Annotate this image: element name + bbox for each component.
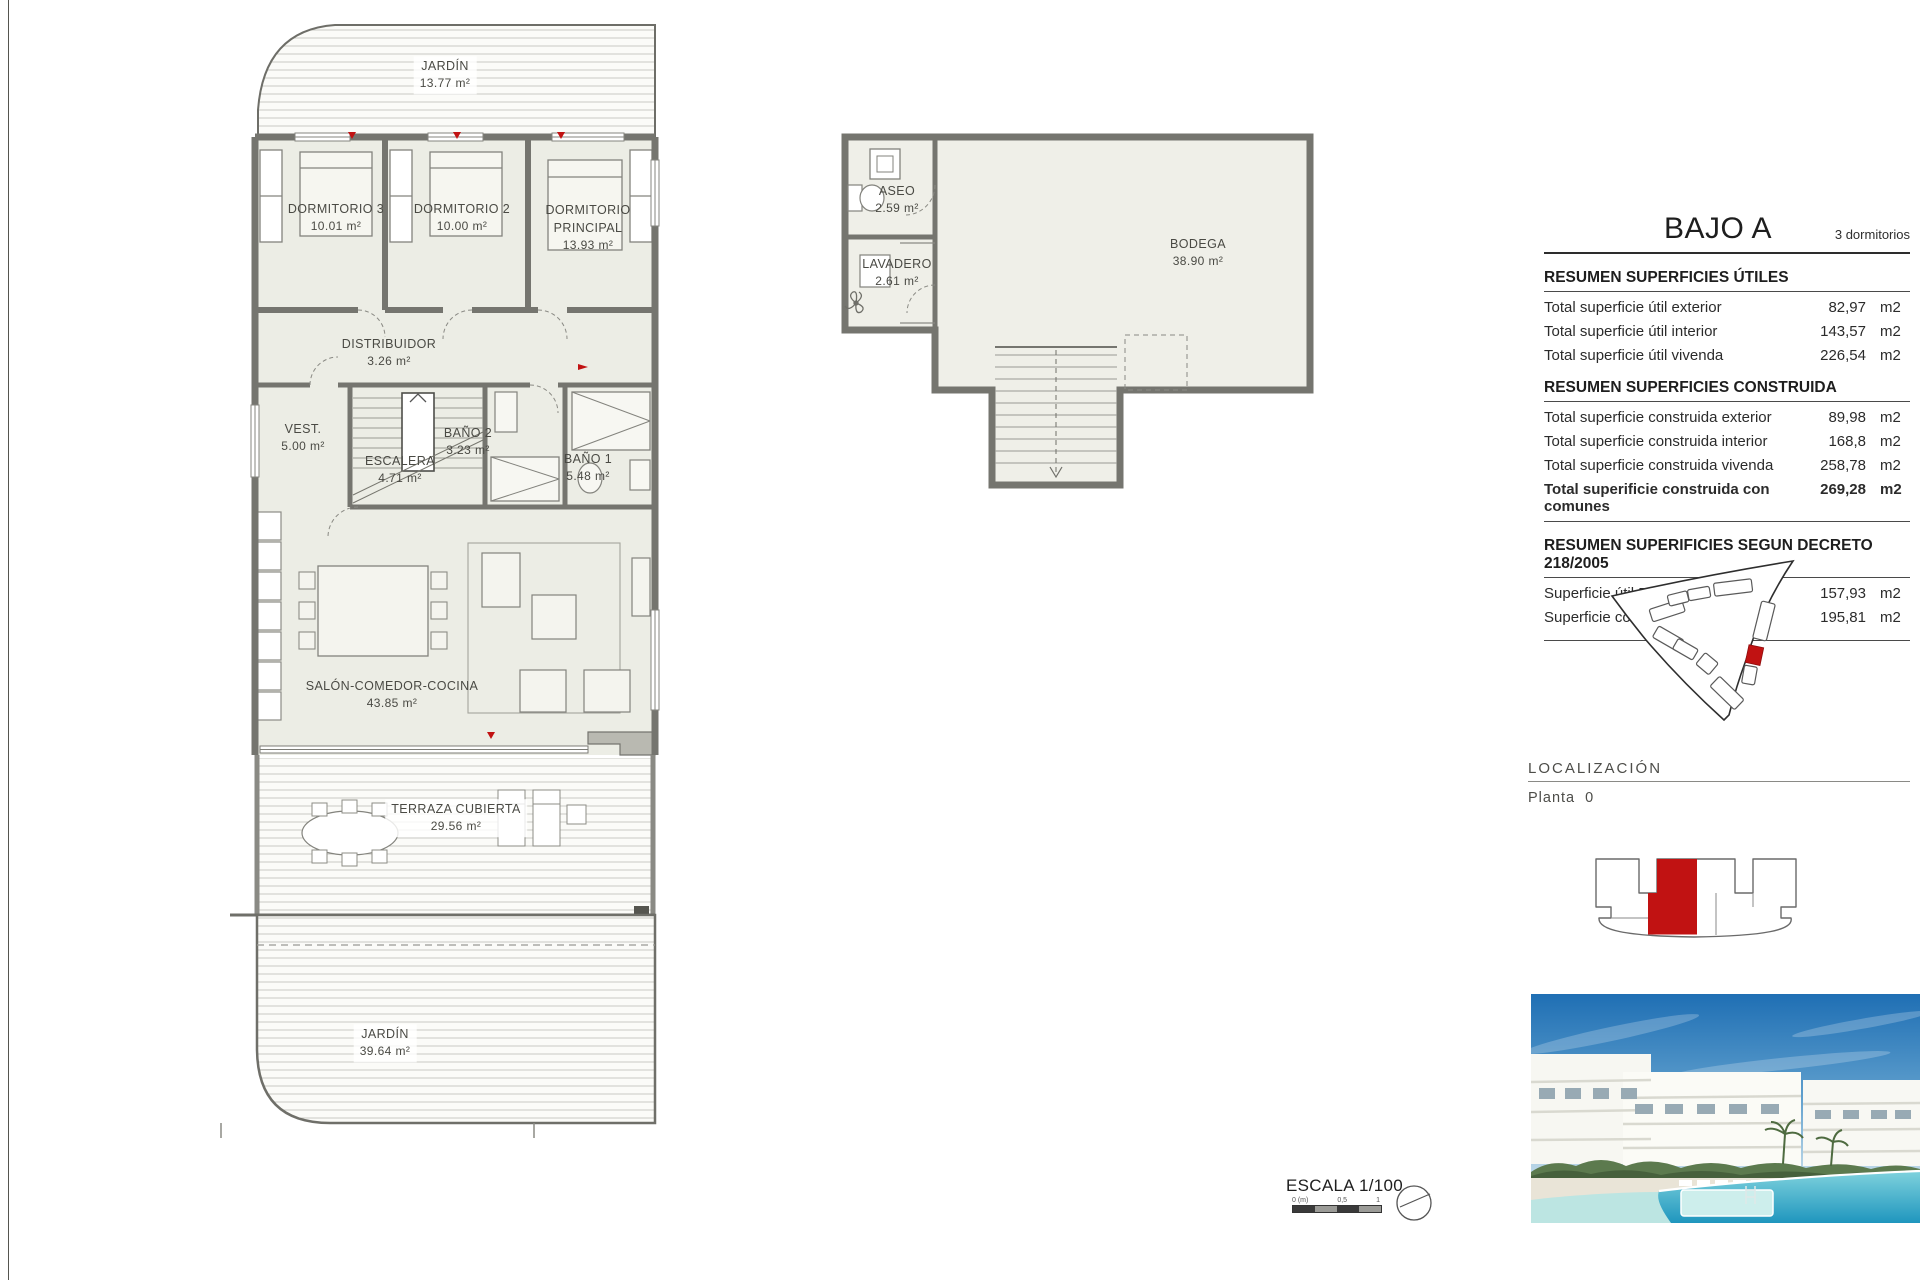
room-label-dormitorio2: DORMITORIO 210.00 m² [414,200,510,236]
room-label-jardin-top: JARDÍN13.77 m² [414,56,477,94]
north-indicator-icon [1392,1183,1436,1227]
table-row: Total superficie construida interior 168… [1544,433,1910,450]
floor-plan-drawing [200,10,680,1160]
unit-title-row: BAJO A 3 dormitorios [1544,212,1910,254]
planta-label: Planta 0 [1528,790,1910,806]
scale-tick-labels: 0 (m)0,51 [1292,1197,1380,1204]
room-label-bano1: BAÑO 15.48 m² [564,450,612,486]
main-floor-plan: JARDÍN13.77 m² DORMITORIO 310.01 m² DORM… [200,10,680,1160]
table-row-total: Total superificie construida con comunes… [1544,481,1910,522]
room-label-bano2: BAÑO 23.23 m² [444,424,492,460]
room-label-salon: SALÓN-COMEDOR-COCINA43.85 m² [306,677,479,713]
bodega-floor-plan: ASEO2.59 m² LAVADERO2.61 m² BODEGA38.90 … [840,125,1320,505]
room-label-terraza: TERRAZA CUBIERTA29.56 m² [385,799,527,837]
localizacion-heading: LOCALIZACIÓN [1528,760,1910,782]
scale-label: ESCALA 1/100 [1286,1176,1486,1196]
table-row: Total superficie útil exterior 82,97 m2 [1544,299,1910,316]
highlighted-unit-footprint [1648,859,1697,935]
room-label-lavadero: LAVADERO2.61 m² [862,255,931,291]
graphic-scale-bar [1292,1205,1382,1213]
table-row: Total superficie construida exterior 89,… [1544,409,1910,426]
room-label-distribuidor: DISTRIBUIDOR3.26 m² [342,335,436,371]
room-label-escalera: ESCALERA4.71 m² [365,452,435,488]
sheet-border-line [8,0,9,1280]
building-footprint-diagram [1590,855,1862,967]
room-label-vestidor: VEST.5.00 m² [281,420,324,456]
heading-construida: RESUMEN SUPERFICIES CONSTRUIDA [1544,379,1910,402]
room-label-dormitorio-principal: DORMITORIO PRINCIPAL 13.93 m² [545,201,630,255]
scale-block: ESCALA 1/100 0 (m)0,51 [1286,1176,1486,1213]
site-plan-diagram [1600,552,1890,752]
unit-subtitle: 3 dormitorios [1835,227,1910,246]
room-label-dormitorio3: DORMITORIO 310.01 m² [288,200,384,236]
table-row: Total superficie útil vivenda 226,54 m2 [1544,347,1910,364]
heading-utiles: RESUMEN SUPERFICIES ÚTILES [1544,269,1910,292]
project-photo [1531,994,1920,1223]
localizacion-block: LOCALIZACIÓN Planta 0 [1528,760,1910,806]
room-label-jardin-bottom: JARDÍN39.64 m² [354,1024,417,1062]
room-label-aseo: ASEO2.59 m² [875,182,918,218]
highlighted-unit-site [1745,645,1763,666]
plan-sheet: JARDÍN13.77 m² DORMITORIO 310.01 m² DORM… [0,0,1920,1280]
table-row: Total superficie útil interior 143,57 m2 [1544,323,1910,340]
unit-title: BAJO A [1664,212,1835,246]
table-row: Total superficie construida vivenda 258,… [1544,457,1910,474]
room-label-bodega: BODEGA38.90 m² [1170,235,1226,271]
